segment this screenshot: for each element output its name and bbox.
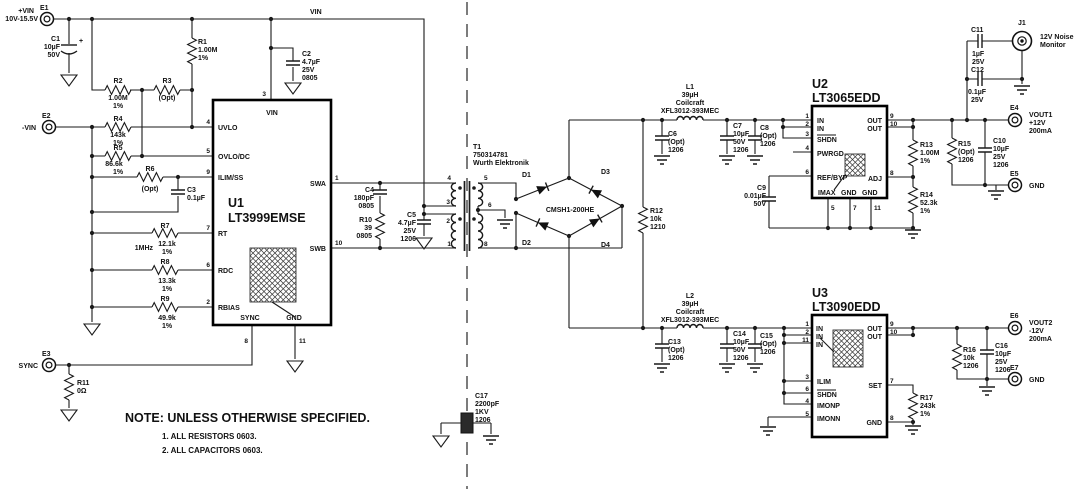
u1-pin-swb: SWB bbox=[310, 246, 326, 253]
r2-val: 1.00M bbox=[108, 95, 128, 102]
c10-ref: C10 bbox=[993, 138, 1006, 145]
u2-pin-gnd2: GND bbox=[862, 190, 878, 197]
u3-num-11: 11 bbox=[802, 337, 809, 344]
u2-pin-out1: OUT bbox=[867, 118, 883, 125]
u1-ref: U1 bbox=[228, 196, 244, 210]
r13-ref: R13 bbox=[920, 142, 933, 149]
u3-pin-imonp: IMONP bbox=[817, 403, 840, 410]
note-item-2: 2. ALL CAPACITORS 0603. bbox=[162, 446, 263, 455]
c6-val: (Opt) bbox=[668, 139, 685, 146]
u3-pin-shdn: SHDN bbox=[817, 392, 837, 399]
r9-ref: R9 bbox=[161, 296, 170, 303]
c15-val: (Opt) bbox=[760, 341, 777, 348]
t1-num-1: 1 bbox=[447, 241, 451, 248]
c10-pkg: 1206 bbox=[993, 162, 1009, 169]
e7-ref: E7 bbox=[1010, 365, 1019, 372]
u1-part: LT3999EMSE bbox=[228, 211, 306, 225]
l2-part: XFL3012-393MEC bbox=[661, 317, 719, 324]
u1-num-1: 1 bbox=[335, 175, 339, 182]
u3-num-1: 1 bbox=[805, 321, 809, 328]
r15-ref: R15 bbox=[958, 141, 971, 148]
u3-num-5: 5 bbox=[805, 411, 809, 418]
e1-net: +VIN bbox=[18, 8, 34, 15]
schematic-page: E1 +VIN 10V-15.5V E2 -VIN E3 SYNC E4 VOU… bbox=[0, 0, 1080, 491]
t1-mfr: Wurth Elektronik bbox=[473, 160, 529, 167]
l2-val: 39µH bbox=[682, 301, 699, 308]
r7-tol: 1% bbox=[162, 249, 173, 256]
c5-volt: 25V bbox=[404, 228, 417, 235]
u3-pin-out2: OUT bbox=[867, 334, 883, 341]
j1-ref: J1 bbox=[1018, 20, 1026, 27]
r8-val: 13.3k bbox=[158, 278, 176, 285]
j1-l1: 12V Noise bbox=[1040, 34, 1074, 41]
r17-tol: 1% bbox=[920, 411, 931, 418]
u1-pin-sync: SYNC bbox=[240, 315, 259, 322]
u3-pin-gnd: GND bbox=[866, 420, 882, 427]
r16-val: 10k bbox=[963, 355, 975, 362]
c8-val: (Opt) bbox=[760, 133, 777, 140]
e4-l3: 200mA bbox=[1029, 128, 1052, 135]
c12-val: 0.1µF bbox=[968, 89, 987, 96]
t1-part: 750314781 bbox=[473, 152, 508, 159]
c4-val: 180pF bbox=[354, 195, 375, 202]
u1-num-7: 7 bbox=[206, 225, 210, 232]
c14-val: 10µF bbox=[733, 339, 750, 346]
u2-pin-in1: IN bbox=[817, 118, 824, 125]
c13-pkg: 1206 bbox=[668, 355, 684, 362]
e2-ref: E2 bbox=[42, 113, 51, 120]
c5-pkg: 1206 bbox=[400, 236, 416, 243]
r15-val: (Opt) bbox=[958, 149, 975, 156]
u2-num-9: 9 bbox=[890, 113, 894, 120]
r17-val: 243k bbox=[920, 403, 936, 410]
c1-ref: C1 bbox=[51, 36, 60, 43]
u1-num-2: 2 bbox=[206, 299, 210, 306]
r9-tol: 1% bbox=[162, 323, 173, 330]
u2-num-1: 1 bbox=[805, 113, 809, 120]
e4-l2: +12V bbox=[1029, 120, 1046, 127]
c5-val: 4.7µF bbox=[398, 220, 417, 227]
r7-val: 12.1k bbox=[158, 241, 176, 248]
u2-pin-imax: IMAX bbox=[818, 190, 836, 197]
t1-num-5: 5 bbox=[484, 175, 488, 182]
bridge-part-label: CMSH1-200HE bbox=[546, 207, 595, 214]
e3-ref: E3 bbox=[42, 351, 51, 358]
note-heading: NOTE: UNLESS OTHERWISE SPECIFIED. bbox=[125, 411, 370, 425]
r10-ref: R10 bbox=[359, 217, 372, 224]
c17-ref: C17 bbox=[475, 393, 488, 400]
r16-ref: R16 bbox=[963, 347, 976, 354]
c7-ref: C7 bbox=[733, 123, 742, 130]
u2-num-6: 6 bbox=[805, 169, 809, 176]
l1-part: XFL3012-393MEC bbox=[661, 108, 719, 115]
c1-volt: 50V bbox=[48, 52, 61, 59]
c14-ref: C14 bbox=[733, 331, 746, 338]
r2-ref: R2 bbox=[114, 78, 123, 85]
r8-tol: 1% bbox=[162, 286, 173, 293]
u2-pin-refbyp: REF/BYP bbox=[817, 175, 848, 182]
u2-num-3: 3 bbox=[805, 131, 809, 138]
c2-pkg: 0805 bbox=[302, 75, 318, 82]
c4-pkg: 0805 bbox=[358, 203, 374, 210]
e1-ref: E1 bbox=[40, 5, 49, 12]
r3-val: (Opt) bbox=[159, 95, 176, 102]
c16-ref: C16 bbox=[995, 343, 1008, 350]
c9-val: 0.01µF bbox=[744, 193, 767, 200]
u2-pin-out2: OUT bbox=[867, 126, 883, 133]
c11-val: 1µF bbox=[972, 51, 985, 58]
u2-num-4: 4 bbox=[805, 145, 809, 152]
e5-ref: E5 bbox=[1010, 171, 1019, 178]
t1-num-8: 8 bbox=[484, 241, 488, 248]
e5-net: GND bbox=[1029, 183, 1045, 190]
d1-label: D1 bbox=[522, 172, 531, 179]
c7-val: 10µF bbox=[733, 131, 750, 138]
c16-pkg: 1206 bbox=[995, 367, 1011, 374]
r1-val: 1.00M bbox=[198, 47, 218, 54]
u2-part: LT3065EDD bbox=[812, 91, 881, 105]
u1-num-10: 10 bbox=[335, 240, 343, 247]
c16-val: 10µF bbox=[995, 351, 1012, 358]
r10-val: 39 bbox=[364, 225, 372, 232]
e6-l3: 200mA bbox=[1029, 336, 1052, 343]
u3-num-2: 2 bbox=[805, 329, 809, 336]
u3-num-9: 9 bbox=[890, 321, 894, 328]
t1-num-6: 6 bbox=[488, 202, 492, 209]
r16-pkg: 1206 bbox=[963, 363, 979, 370]
u1-pin-vin: VIN bbox=[266, 110, 278, 117]
u1-pin-swa: SWA bbox=[310, 181, 326, 188]
l2-ref: L2 bbox=[686, 293, 694, 300]
e4-ref: E4 bbox=[1010, 105, 1019, 112]
c4-ref: C4 bbox=[365, 187, 374, 194]
d3-label: D3 bbox=[601, 169, 610, 176]
u2-num-7: 7 bbox=[853, 205, 857, 212]
r4-val: 143k bbox=[110, 132, 126, 139]
u3-num-10: 10 bbox=[890, 329, 898, 336]
schematic-canvas: E1 +VIN 10V-15.5V E2 -VIN E3 SYNC E4 VOU… bbox=[0, 0, 1080, 491]
c17-pkg: 1206 bbox=[475, 417, 491, 424]
u3-pin-in3: IN bbox=[816, 342, 823, 349]
c13-ref: C13 bbox=[668, 339, 681, 346]
c7-pkg: 1206 bbox=[733, 147, 749, 154]
r1-tol: 1% bbox=[198, 55, 209, 62]
c10-val: 10µF bbox=[993, 146, 1010, 153]
c9-ref: C9 bbox=[757, 185, 766, 192]
e6-l1: VOUT2 bbox=[1029, 320, 1052, 327]
vin-net-label: VIN bbox=[310, 9, 322, 16]
r1-ref: R1 bbox=[198, 39, 207, 46]
c11-ref: C11 bbox=[971, 27, 984, 34]
u2-num-8: 8 bbox=[890, 170, 894, 177]
u1-num-6: 6 bbox=[206, 262, 210, 269]
r6-val: (Opt) bbox=[142, 186, 159, 193]
c14-pkg: 1206 bbox=[733, 355, 749, 362]
u1-pin-ovlo: OVLO/DC bbox=[218, 154, 250, 161]
c17-val: 2200pF bbox=[475, 401, 500, 408]
u2-num-5: 5 bbox=[831, 205, 835, 212]
u2-pin-shdn: SHDN bbox=[817, 137, 837, 144]
r12-val: 10k bbox=[650, 216, 662, 223]
c12-volt: 25V bbox=[971, 97, 984, 104]
r6-ref: R6 bbox=[146, 166, 155, 173]
c5-ref: C5 bbox=[407, 212, 416, 219]
c6-ref: C6 bbox=[668, 131, 677, 138]
c13-val: (Opt) bbox=[668, 347, 685, 354]
l1-ref: L1 bbox=[686, 84, 694, 91]
c3-ref: C3 bbox=[187, 187, 196, 194]
r17-ref: R17 bbox=[920, 395, 933, 402]
u3-pin-ilim: ILIM bbox=[817, 379, 831, 386]
r9-val: 49.9k bbox=[158, 315, 176, 322]
c8-pkg: 1206 bbox=[760, 141, 776, 148]
r13-val: 1.00M bbox=[920, 150, 940, 157]
e4-l1: VOUT1 bbox=[1029, 112, 1052, 119]
u1-pin-gnd: GND bbox=[286, 315, 302, 322]
u2-pin-in2: IN bbox=[817, 126, 824, 133]
c17-volt: 1KV bbox=[475, 409, 489, 416]
l2-mfr: Coilcraft bbox=[676, 309, 705, 316]
d2-label: D2 bbox=[522, 240, 531, 247]
d4-label: D4 bbox=[601, 242, 610, 249]
u3-pin-in1: IN bbox=[816, 326, 823, 333]
c2-ref: C2 bbox=[302, 51, 311, 58]
u2-num-11: 11 bbox=[874, 205, 881, 212]
r4-ref: R4 bbox=[114, 116, 123, 123]
u1-num-11: 11 bbox=[299, 338, 306, 345]
r13-tol: 1% bbox=[920, 158, 931, 165]
c9-volt: 50V bbox=[754, 201, 767, 208]
r12-ref: R12 bbox=[650, 208, 663, 215]
u2-ref: U2 bbox=[812, 77, 828, 91]
u2-num-2: 2 bbox=[805, 121, 809, 128]
u1-exposed-pad bbox=[250, 248, 296, 302]
r5-ref: R5 bbox=[114, 145, 123, 152]
u1-pin-ilimss: ILIM/SS bbox=[218, 175, 244, 182]
r11-val: 0Ω bbox=[77, 388, 87, 395]
u3-ref: U3 bbox=[812, 286, 828, 300]
e1-range: 10V-15.5V bbox=[5, 16, 38, 23]
e2-net: -VIN bbox=[22, 125, 36, 132]
r14-tol: 1% bbox=[920, 208, 931, 215]
r10-pkg: 0805 bbox=[356, 233, 372, 240]
u3-exposed-pad bbox=[833, 330, 863, 367]
r8-ref: R8 bbox=[161, 259, 170, 266]
u2-pin-gnd1: GND bbox=[841, 190, 857, 197]
u3-num-8: 8 bbox=[890, 415, 894, 422]
u3-pin-out1: OUT bbox=[867, 326, 883, 333]
u1-num-8: 8 bbox=[244, 338, 248, 345]
l1-val: 39µH bbox=[682, 92, 699, 99]
r7-ref: R7 bbox=[161, 223, 170, 230]
c1-plus: + bbox=[79, 38, 83, 45]
u3-num-3: 3 bbox=[805, 374, 809, 381]
c1-val: 10µF bbox=[44, 44, 61, 51]
u3-num-6: 6 bbox=[805, 386, 809, 393]
u2-pin-pwrgd: PWRGD bbox=[817, 151, 844, 158]
r5-tol: 1% bbox=[113, 169, 124, 176]
r3-ref: R3 bbox=[163, 78, 172, 85]
c15-pkg: 1206 bbox=[760, 349, 776, 356]
e7-net: GND bbox=[1029, 377, 1045, 384]
e6-l2: -12V bbox=[1029, 328, 1044, 335]
c6-pkg: 1206 bbox=[668, 147, 684, 154]
u2-exposed-pad bbox=[845, 154, 865, 176]
c15-ref: C15 bbox=[760, 333, 773, 340]
u1-pin-rdc: RDC bbox=[218, 268, 233, 275]
r11-ref: R11 bbox=[77, 380, 90, 387]
r5-val: 86.6k bbox=[105, 161, 123, 168]
freq-label: 1MHz bbox=[135, 245, 154, 252]
u3-num-7: 7 bbox=[890, 378, 894, 385]
c14-volt: 50V bbox=[733, 347, 746, 354]
t1-num-2: 2 bbox=[446, 218, 450, 225]
u3-pin-in2: IN bbox=[816, 334, 823, 341]
t1-ref: T1 bbox=[473, 144, 481, 151]
r2-tol: 1% bbox=[113, 103, 124, 110]
u1-num-9: 9 bbox=[206, 169, 210, 176]
r12-pkg: 1210 bbox=[650, 224, 666, 231]
j1-l2: Monitor bbox=[1040, 42, 1066, 49]
u3-pin-imonn: IMONN bbox=[817, 416, 840, 423]
u1-num-3: 3 bbox=[262, 91, 266, 98]
r14-ref: R14 bbox=[920, 192, 933, 199]
r15-pkg: 1206 bbox=[958, 157, 974, 164]
e3-net: SYNC bbox=[19, 363, 38, 370]
c2-val: 4.7µF bbox=[302, 59, 321, 66]
u1-num-4: 4 bbox=[206, 119, 210, 126]
ic-u1[interactable]: U1 LT3999EMSE VIN UVLO OVLO/DC ILIM/SS R… bbox=[206, 91, 342, 345]
c7-volt: 50V bbox=[733, 139, 746, 146]
c8-ref: C8 bbox=[760, 125, 769, 132]
u3-part: LT3090EDD bbox=[812, 300, 881, 314]
c12-ref: C12 bbox=[971, 67, 984, 74]
c16-volt: 25V bbox=[995, 359, 1008, 366]
u1-pin-uvlo: UVLO bbox=[218, 125, 238, 132]
c3-val: 0.1µF bbox=[187, 195, 206, 202]
c11-volt: 25V bbox=[972, 59, 985, 66]
c2-volt: 25V bbox=[302, 67, 315, 74]
c10-volt: 25V bbox=[993, 154, 1006, 161]
u3-num-4: 4 bbox=[805, 398, 809, 405]
u2-pin-adj: ADJ bbox=[868, 176, 882, 183]
t1-num-3: 3 bbox=[446, 199, 450, 206]
r14-val: 52.3k bbox=[920, 200, 938, 207]
u3-pin-set: SET bbox=[868, 383, 882, 390]
l1-mfr: Coilcraft bbox=[676, 100, 705, 107]
note-item-1: 1. ALL RESISTORS 0603. bbox=[162, 432, 257, 441]
u2-num-10: 10 bbox=[890, 121, 898, 128]
e6-ref: E6 bbox=[1010, 313, 1019, 320]
u1-pin-rbias: RBIAS bbox=[218, 305, 240, 312]
u1-pin-rt: RT bbox=[218, 231, 228, 238]
u1-num-5: 5 bbox=[206, 148, 210, 155]
t1-num-4: 4 bbox=[447, 175, 451, 182]
